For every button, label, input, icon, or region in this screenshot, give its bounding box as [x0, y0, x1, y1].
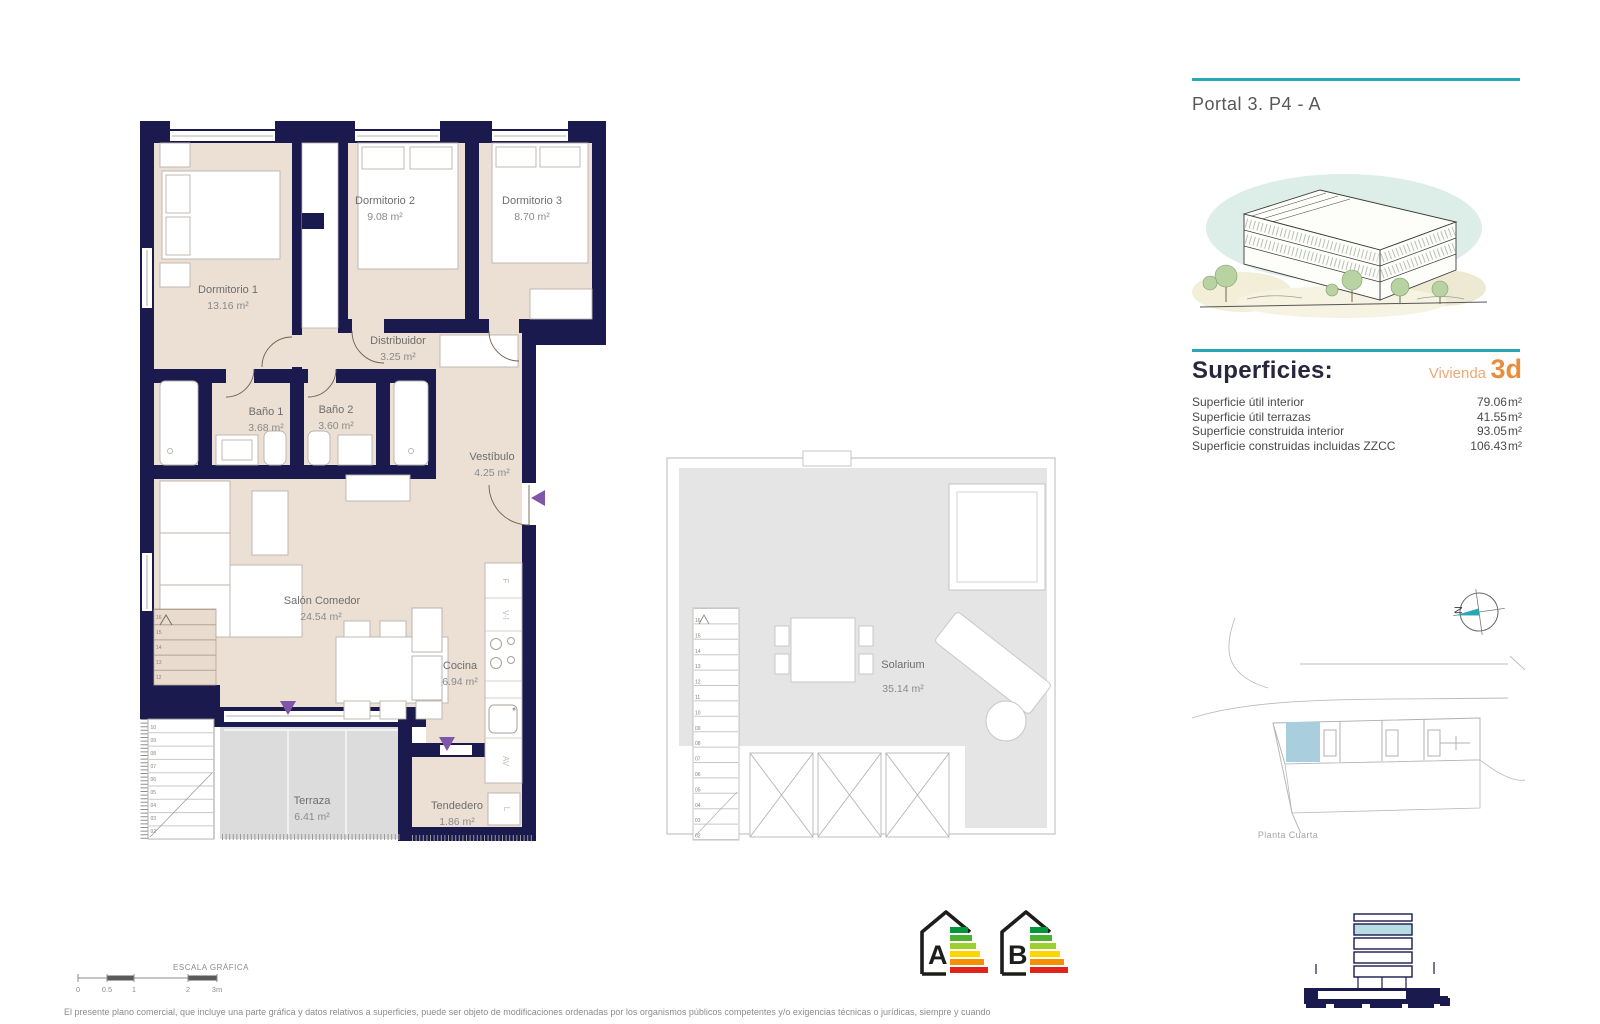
scale-tick: 0	[76, 985, 80, 994]
wardrobe-symbol	[302, 143, 338, 328]
counter-symbol	[412, 656, 442, 700]
energy-bars	[950, 927, 988, 973]
roof-access-symbol	[803, 451, 851, 466]
svg-text:9.08 m²: 9.08 m²	[367, 211, 403, 223]
room-label-dormitorio2: Dormitorio 2	[355, 195, 415, 207]
superficies-block: Superficies: Vivienda 3d Superficie útil…	[1192, 354, 1522, 453]
nightstand-symbol	[160, 263, 190, 287]
svg-text:09: 09	[151, 738, 157, 744]
energy-bars	[1030, 927, 1068, 973]
room-label-cocina: Cocina	[443, 660, 478, 672]
scale-title: ESCALA GRÁFICA	[173, 963, 249, 972]
room-label-vestibulo: Vestíbulo	[469, 451, 514, 463]
room-label-solarium: Solarium	[881, 659, 924, 671]
svg-text:03: 03	[695, 818, 701, 824]
svg-text:05: 05	[151, 790, 157, 796]
svg-text:13: 13	[695, 664, 701, 670]
room-label-terraza: Terraza	[294, 795, 332, 807]
superficie-row: Superficie útil terrazas 41.55 m²	[1192, 410, 1522, 425]
room-label-dormitorio1: Dormitorio 1	[198, 284, 258, 296]
closet-symbol	[440, 335, 518, 367]
section-base-slot	[1318, 991, 1406, 999]
svg-text:11: 11	[695, 695, 700, 701]
solarium-stairs: 161514131211100908070605040302	[693, 608, 739, 840]
appliance-label-oven: V-I	[501, 610, 510, 620]
stairs-lower: 100908070605040302	[144, 719, 214, 839]
svg-text:15: 15	[695, 633, 701, 639]
svg-text:10: 10	[695, 710, 701, 716]
energy-letter: A	[928, 940, 948, 970]
svg-text:12: 12	[695, 680, 701, 686]
sideboard-symbol	[346, 475, 410, 501]
superficies-rows: Superficie útil interior 79.06 m² Superf…	[1192, 395, 1522, 453]
svg-text:14: 14	[695, 649, 701, 655]
svg-text:05: 05	[695, 787, 701, 793]
superficie-row: Superficie construida interior 93.05 m²	[1192, 424, 1522, 439]
header-rule	[1192, 78, 1520, 81]
room-label-bano1: Baño 1	[249, 406, 284, 418]
svg-text:13.16 m²: 13.16 m²	[207, 300, 249, 312]
energy-letter: B	[1008, 940, 1028, 970]
sink-symbol	[338, 435, 372, 465]
svg-text:35.14 m²: 35.14 m²	[882, 683, 924, 695]
svg-text:07: 07	[695, 757, 701, 763]
site-key-plan	[1180, 598, 1530, 833]
appliance-label-av: AV	[501, 756, 510, 767]
svg-text:3.60 m²: 3.60 m²	[318, 420, 354, 432]
plan-sheet: F V-I AV L 1615141312 100908070605040302	[0, 0, 1600, 1024]
appliance-label-washer: L	[502, 807, 511, 812]
svg-text:6.41 m²: 6.41 m²	[294, 811, 330, 823]
svg-text:07: 07	[151, 764, 157, 770]
svg-text:12: 12	[156, 675, 162, 681]
site-roads	[1192, 618, 1525, 718]
scale-tick: 2	[186, 985, 190, 994]
svg-text:03: 03	[151, 816, 157, 822]
coffee-table-symbol	[252, 491, 288, 555]
site-plan-caption: Planta Cuarta	[1233, 830, 1343, 840]
superficies-rule	[1192, 349, 1520, 352]
toilet-symbol	[308, 431, 330, 465]
svg-text:8.70 m²: 8.70 m²	[514, 211, 550, 223]
svg-text:3.68 m²: 3.68 m²	[248, 422, 284, 434]
svg-text:08: 08	[695, 741, 701, 747]
room-label-salon: Salón Comedor	[284, 595, 361, 607]
energy-badge-a: A	[922, 912, 988, 974]
page-title: Portal 3. P4 - A	[1192, 94, 1522, 115]
svg-text:10: 10	[151, 725, 157, 731]
bathtub-symbol	[160, 381, 198, 465]
site-building	[1273, 718, 1525, 833]
nightstand-symbol	[160, 143, 190, 167]
svg-text:04: 04	[151, 803, 157, 809]
vivienda-label: Vivienda	[1429, 365, 1486, 382]
section-floors	[1354, 914, 1412, 977]
energy-rating-badges: A B	[912, 902, 1068, 984]
legal-disclaimer: El presente plano comercial, que incluye…	[64, 1007, 1544, 1017]
scale-tick: 1	[132, 985, 136, 994]
svg-text:16: 16	[695, 618, 701, 624]
appliance-label-fridge: F	[501, 579, 510, 584]
section-floor-highlight	[1354, 924, 1412, 935]
scale-tick: 0.5	[102, 985, 112, 994]
svg-text:4.25 m²: 4.25 m²	[474, 467, 510, 479]
superficie-row: Superficie construidas incluidas ZZCC 10…	[1192, 439, 1522, 454]
vivienda-tag: Vivienda 3d	[1429, 354, 1522, 385]
roof-void-symbols	[750, 753, 949, 837]
stairs-upper: 1615141312	[154, 609, 216, 685]
svg-text:08: 08	[151, 751, 157, 757]
superficies-heading: Superficies:	[1192, 357, 1333, 385]
vivienda-code: 3d	[1490, 354, 1522, 384]
solarium-plan: 161514131211100908070605040302 Solarium …	[663, 448, 1063, 846]
toilet-symbol	[264, 431, 286, 465]
main-floorplan: F V-I AV L 1615141312 100908070605040302	[140, 113, 620, 845]
closet-symbol	[530, 289, 592, 319]
svg-text:02: 02	[695, 834, 701, 840]
svg-text:3.25 m²: 3.25 m²	[380, 351, 416, 363]
room-label-dormitorio3: Dormitorio 3	[502, 195, 562, 207]
unit-highlight	[1286, 722, 1320, 762]
svg-text:15: 15	[156, 630, 162, 636]
svg-text:14: 14	[156, 645, 162, 651]
energy-badge-b: B	[1002, 912, 1068, 974]
svg-text:13: 13	[156, 660, 162, 666]
svg-text:02: 02	[151, 829, 157, 835]
superficie-row: Superficie útil interior 79.06 m²	[1192, 395, 1522, 410]
svg-text:6.94 m²: 6.94 m²	[442, 676, 478, 688]
svg-text:1.86 m²: 1.86 m²	[439, 816, 475, 828]
svg-text:24.54 m²: 24.54 m²	[300, 611, 342, 623]
counter-symbol	[412, 608, 442, 652]
room-label-distribuidor: Distribuidor	[370, 335, 426, 347]
building-section	[1288, 878, 1488, 1010]
svg-text:06: 06	[695, 772, 701, 778]
room-label-bano2: Baño 2	[319, 404, 354, 416]
svg-text:09: 09	[695, 726, 701, 732]
building-sketch	[1192, 166, 1497, 336]
svg-text:16: 16	[156, 615, 162, 621]
scale-tick: 3m	[212, 985, 222, 994]
skylight-square	[949, 484, 1045, 590]
svg-text:06: 06	[151, 777, 157, 783]
room-label-tendedero: Tendedero	[431, 800, 483, 812]
svg-text:04: 04	[695, 803, 701, 809]
graphic-scale: ESCALA GRÁFICA 0 0.5 1 2 3m	[60, 938, 260, 996]
